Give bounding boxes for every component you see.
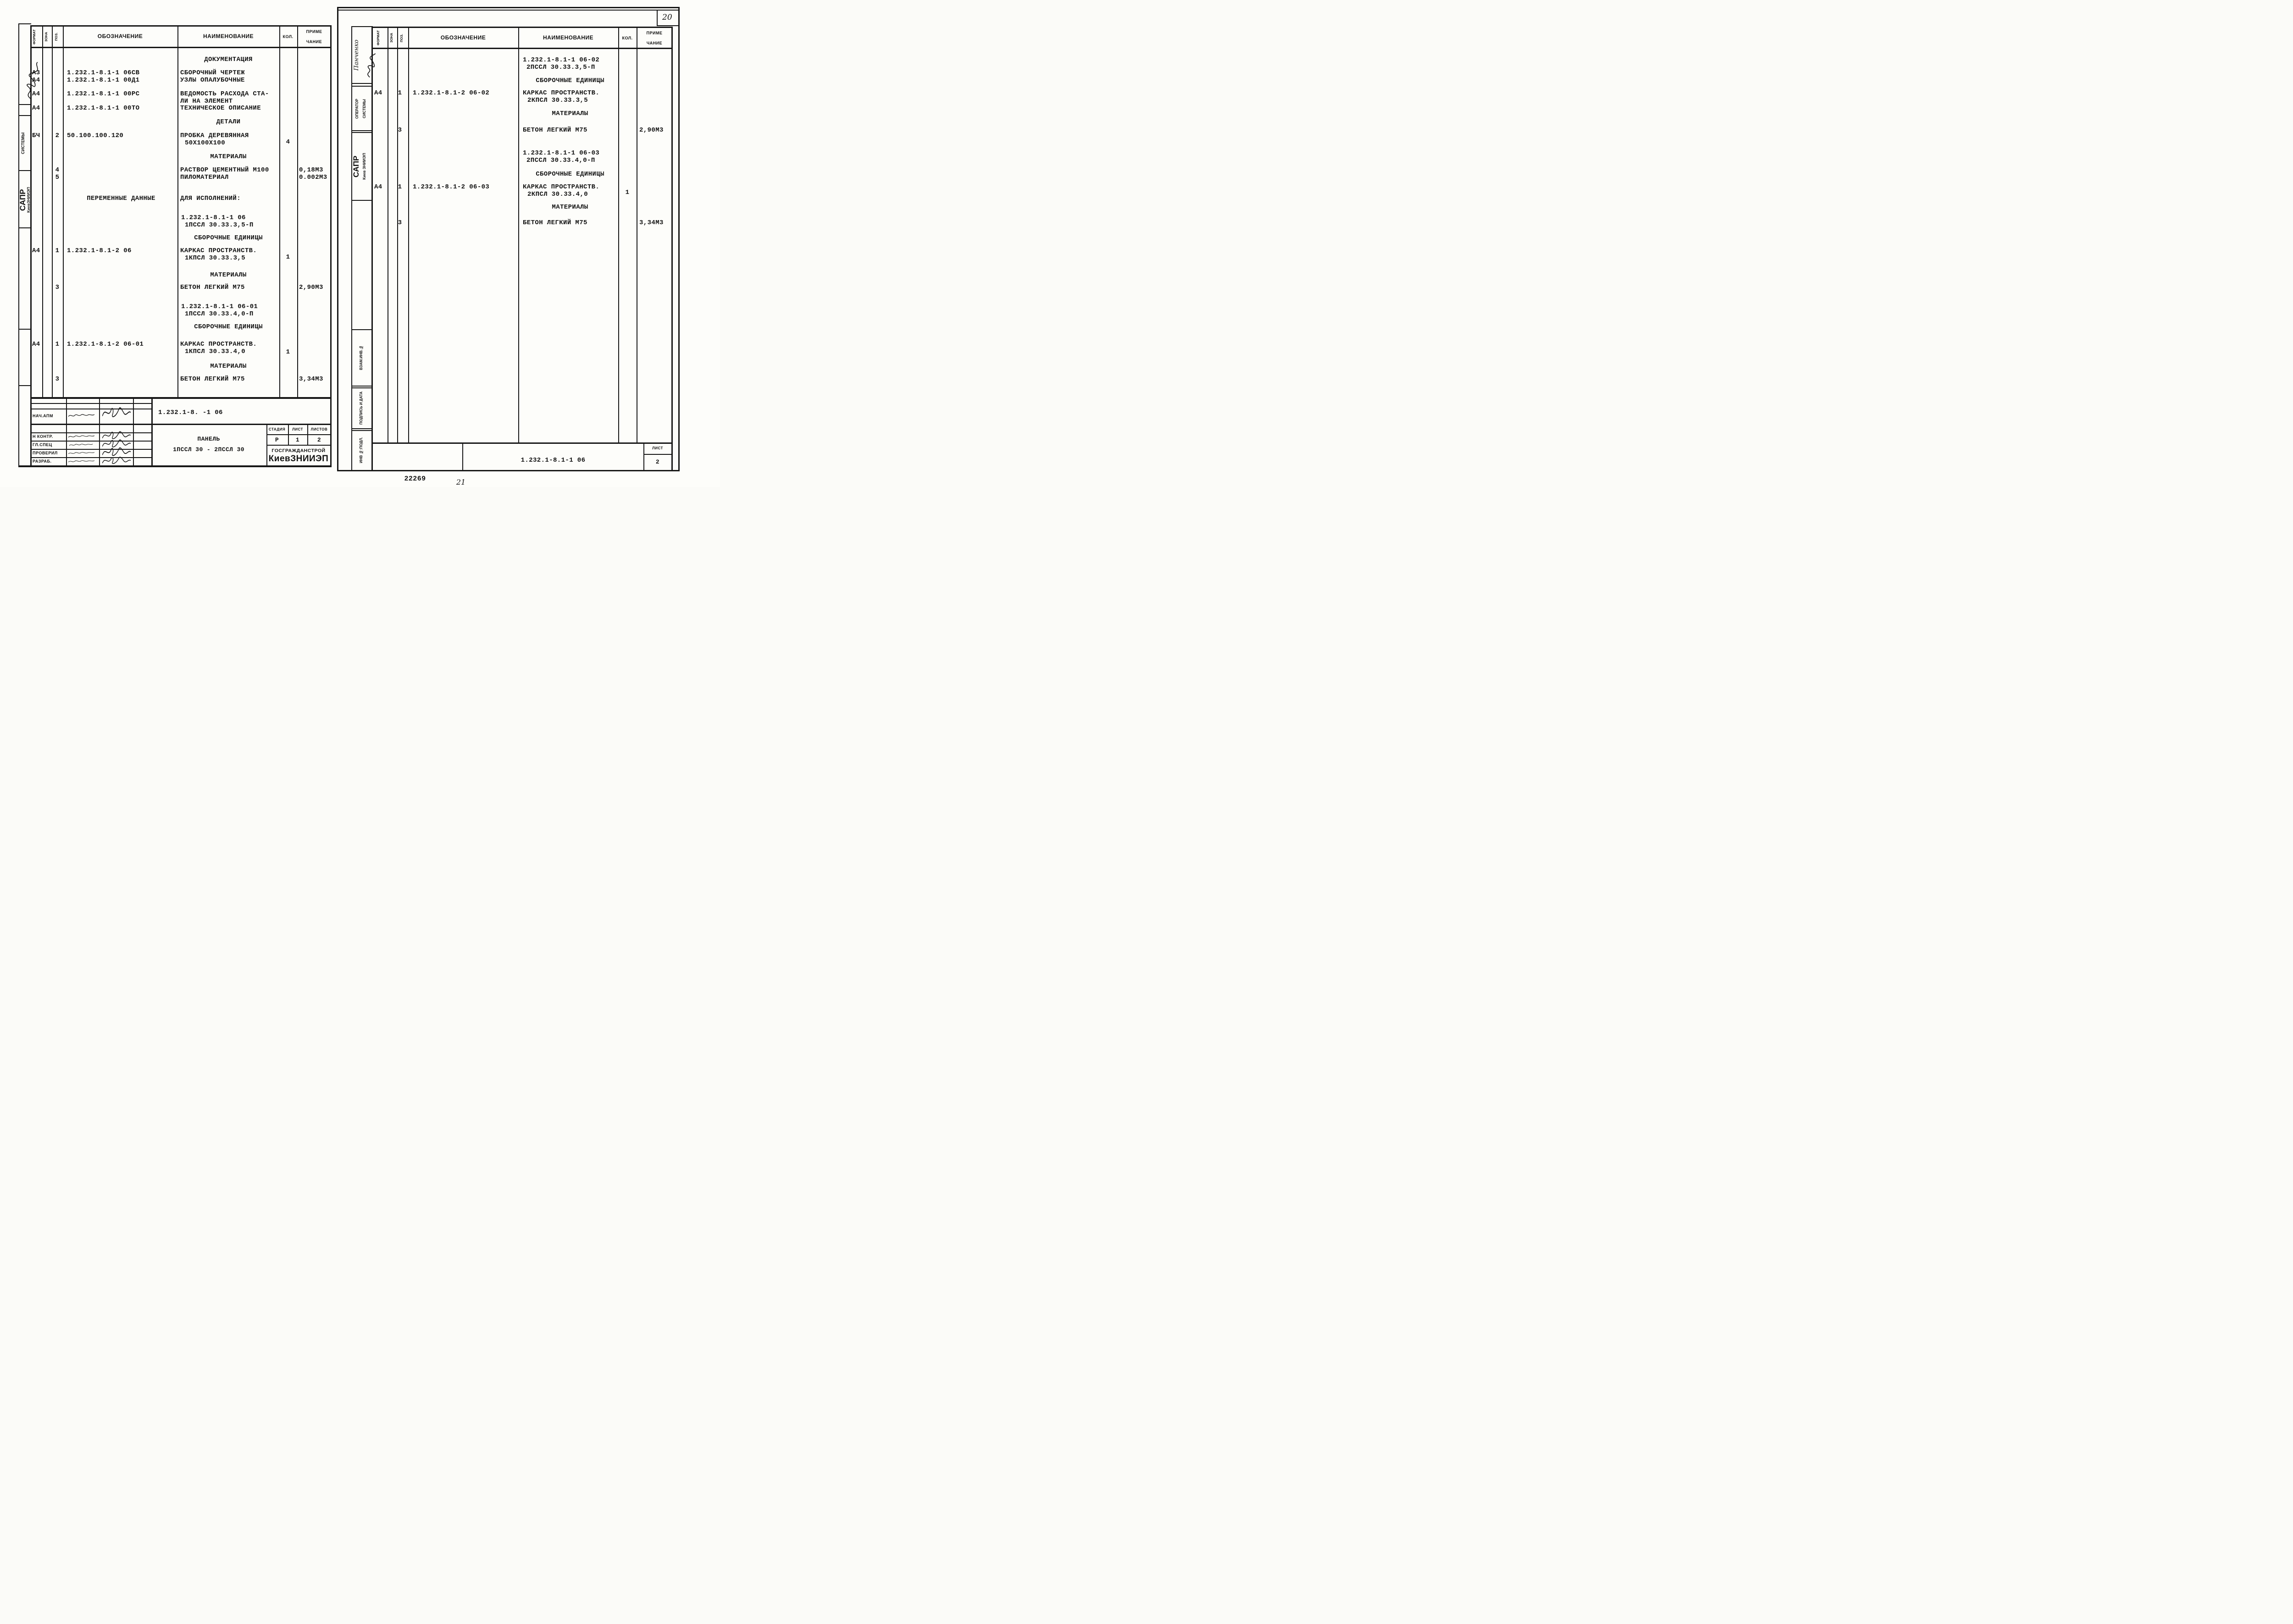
- row-designation: 1.232.1-8.1-2 06-03: [413, 183, 489, 191]
- row-name-2: 2ПССЛ 30.33.4,0-П: [526, 157, 595, 164]
- row-designation: 1.232.1-8.1-1 06СВ: [67, 69, 139, 77]
- row-note: 0.002М3: [299, 174, 327, 181]
- handwritten-signature: [102, 405, 131, 419]
- grid-line: [371, 442, 672, 444]
- row-name: ДЛЯ ИСПОЛНЕНИЙ:: [180, 195, 241, 202]
- grid-line: [297, 25, 298, 398]
- org-name-line1: ГОСГРАЖДАНСТРОЙ: [271, 448, 325, 453]
- row-pos: 4: [55, 166, 60, 174]
- product-name-line2: 1ПССЛ 30 - 2ПССЛ 30: [173, 446, 244, 453]
- grid-line: [133, 398, 134, 466]
- grid-line: [351, 428, 371, 429]
- section-row: СБОРОЧНЫЕ ЕДИНИЦЫ: [194, 234, 263, 242]
- grid-line: [18, 385, 31, 386]
- grid-line: [397, 27, 398, 442]
- right-sidebar-sapr-label: САПР: [352, 135, 361, 198]
- grid-line: [351, 83, 371, 84]
- row-name-2: 1КПСЛ 30.33.4,0: [185, 348, 245, 355]
- col-header-format: ФОРМАТ: [376, 28, 380, 48]
- stage-header: СТАДИЯ: [269, 427, 285, 431]
- row-pos: 3: [398, 219, 402, 226]
- row-pos: 3: [55, 284, 60, 291]
- grid-line: [279, 25, 280, 398]
- grid-line: [657, 25, 679, 26]
- right-sidebar-author-name: Панченко: [353, 29, 360, 81]
- grid-line: [351, 386, 371, 387]
- right-sidebar-operator-label-2: СИСТЕМЫ: [362, 88, 366, 129]
- row-pos: 1: [55, 341, 60, 348]
- row-designation: 1.232.1-8.1-2 06-02: [413, 89, 489, 97]
- row-designation: 1.232.1-8.1-1 00Д1: [67, 77, 139, 84]
- grid-line: [18, 465, 332, 467]
- col-header-zone: ЗОНА: [389, 28, 393, 48]
- col-header-pos: ПОЗ.: [54, 27, 58, 47]
- grid-line: [337, 10, 680, 11]
- grid-line: [288, 425, 289, 446]
- row-format: А4: [374, 183, 382, 191]
- grid-line: [63, 25, 64, 398]
- right-sidebar-inv-label: ИНВ №:ПОДЛ.: [359, 431, 363, 469]
- variable-data-label: ПЕРЕМЕННЫЕ ДАННЫЕ: [87, 195, 155, 202]
- grid-line: [408, 27, 409, 442]
- col-header-designation: ОБОЗНАЧЕНИЕ: [98, 33, 143, 39]
- row-format: А4: [32, 247, 40, 254]
- grid-line: [351, 430, 371, 431]
- handwritten-signature: [68, 459, 96, 465]
- title-doc-number: 1.232.1-8.1-1 06: [521, 457, 586, 464]
- grid-line: [388, 27, 388, 442]
- row-format: А4: [32, 77, 40, 84]
- row-designation: 50.100.100.120: [67, 132, 123, 139]
- org-name-line2: КиевЗНИИЭП: [269, 454, 329, 464]
- row-format: А4: [32, 90, 40, 98]
- col-header-note-2: ЧАНИЕ: [647, 41, 662, 45]
- row-format: А3: [32, 69, 40, 77]
- section-row: МАТЕРИАЛЫ: [210, 271, 246, 279]
- handwritten-signature: [68, 434, 96, 441]
- grid-line: [371, 26, 373, 470]
- row-designation: 1.232.1-8.1-2 06: [67, 247, 132, 254]
- row-name: КАРКАС ПРОСТРАНСТВ.: [523, 183, 599, 191]
- grid-line: [678, 7, 680, 471]
- row-qty: 4: [286, 138, 290, 146]
- col-header-note-1: ПРИМЕ: [647, 31, 663, 35]
- row-name: КАРКАС ПРОСТРАНСТВ.: [180, 341, 257, 348]
- right-sidebar-org-label: Киев ЗНИИЭП: [362, 135, 366, 198]
- grid-line: [462, 442, 463, 470]
- row-format: А4: [32, 105, 40, 112]
- row-name: УЗЛЫ ОПАЛУБОЧНЫЕ: [180, 77, 245, 84]
- row-pos: 3: [55, 376, 60, 383]
- title-label-nach-apm: НАЧ.АПМ: [33, 414, 53, 418]
- row-note: 3,34М3: [639, 219, 664, 226]
- right-sidebar-operator-label-1: ОПЕРАТОР: [355, 88, 359, 129]
- row-name-2: 2ПССЛ 30.33.3,5-П: [526, 64, 595, 71]
- grid-line: [30, 424, 332, 425]
- row-name: СБОРОЧНЫЙ ЧЕРТЕЖ: [180, 69, 245, 77]
- row-qty: 1: [286, 348, 290, 356]
- sheet-header: ЛИСТ: [292, 427, 303, 431]
- grid-line: [18, 329, 31, 330]
- grid-line: [351, 329, 371, 330]
- sheet-header: ЛИСТ: [652, 446, 663, 450]
- row-note: 0,18М3: [299, 166, 323, 174]
- row-name-2: 50X100X100: [185, 139, 225, 147]
- grid-line: [18, 227, 31, 228]
- row-note: 2,90М3: [299, 284, 323, 291]
- row-name: 1.232.1-8.1-1 06-02: [523, 56, 599, 64]
- col-header-designation: ОБОЗНАЧЕНИЕ: [441, 34, 486, 41]
- col-header-pos: ПОЗ.: [399, 28, 404, 48]
- grid-line: [266, 434, 331, 435]
- grid-line: [657, 10, 658, 26]
- col-header-name: НАИМЕНОВАНИЕ: [543, 34, 593, 41]
- grid-line: [637, 27, 637, 442]
- title-label-n-kontr: Н КОНТР.: [33, 434, 53, 439]
- sheet-value: 2: [656, 458, 659, 465]
- row-name-2: 2КПСЛ 30.33.4,0: [527, 191, 588, 198]
- grid-line: [18, 23, 19, 466]
- title-doc-number: 1.232.1-8. -1 06: [158, 409, 223, 416]
- sheets-header: ЛИСТОВ: [311, 427, 328, 431]
- row-qty: 1: [626, 189, 630, 196]
- bottom-page-number: 21: [456, 478, 465, 486]
- col-header-note-1: ПРИМЕ: [306, 29, 322, 34]
- col-header-format: ФОРМАТ: [32, 27, 36, 47]
- row-name-2: 1ПССЛ 30.33.4,0-П: [185, 310, 254, 318]
- section-row: ДОКУМЕНТАЦИЯ: [204, 56, 253, 63]
- grid-line: [177, 25, 178, 398]
- grid-line: [351, 26, 352, 470]
- row-name: КАРКАС ПРОСТРАНСТВ.: [523, 89, 599, 97]
- row-name-2: 1ПССЛ 30.33.3,5-П: [185, 221, 254, 229]
- grid-line: [351, 200, 371, 201]
- grid-line: [18, 23, 31, 24]
- grid-line: [30, 47, 332, 48]
- scanned-specification-document: СИСТЕМЫ САПР КиевЗНИИЭП ФОРМАТ ЗОНА ПОЗ.…: [0, 0, 720, 487]
- right-sidebar-vzam-label: ВЗАМ.ИНВ.№: [359, 331, 363, 384]
- row-name: ВЕДОМОСТЬ РАСХОДА СТА-: [180, 90, 269, 98]
- section-row: МАТЕРИАЛЫ: [210, 153, 246, 160]
- handwritten-signature: [69, 442, 94, 448]
- grid-line: [671, 27, 673, 470]
- title-label-razrab: РАЗРАБ.: [33, 459, 52, 464]
- right-sidebar-podpis-label: ПОДПИСЬ И ДАТА: [359, 389, 363, 427]
- section-row: МАТЕРИАЛЫ: [552, 110, 588, 117]
- col-header-qty: КОЛ.: [282, 34, 293, 39]
- section-row: СБОРОЧНЫЕ ЕДИНИЦЫ: [536, 77, 604, 84]
- section-row: МАТЕРИАЛЫ: [552, 204, 588, 211]
- row-name-2: 1КПСЛ 30.33.3,5: [185, 254, 245, 262]
- handwritten-signature: [68, 451, 96, 457]
- grid-line: [618, 27, 619, 442]
- grid-line: [643, 454, 671, 455]
- row-name: 1.232.1-8.1-1 06: [181, 214, 246, 221]
- section-row: СБОРОЧНЫЕ ЕДИНИЦЫ: [194, 323, 263, 331]
- sheet-value: 1: [296, 436, 299, 443]
- handwritten-signature: [102, 455, 131, 465]
- grid-line: [351, 130, 371, 131]
- row-note: 2,90М3: [639, 127, 664, 134]
- row-format: А4: [374, 89, 382, 97]
- grid-line: [351, 387, 371, 388]
- grid-line: [99, 398, 100, 466]
- row-name: РАСТВОР ЦЕМЕНТНЫЙ М100: [180, 166, 269, 174]
- grid-line: [337, 7, 338, 471]
- grid-line: [351, 26, 371, 27]
- grid-line: [52, 25, 53, 398]
- title-label-proveril: ПРОВЕРИЛ: [33, 451, 58, 455]
- row-designation: 1.232.1-8.1-2 06-01: [67, 341, 144, 348]
- grid-line: [30, 25, 332, 27]
- grid-line: [18, 104, 31, 105]
- grid-line: [371, 48, 672, 49]
- row-name: 1.232.1-8.1-1 06-03: [523, 149, 599, 157]
- grid-line: [337, 470, 680, 471]
- row-pos: 1: [398, 183, 402, 191]
- grid-line: [266, 445, 331, 446]
- section-row: СБОРОЧНЫЕ ЕДИНИЦЫ: [536, 171, 604, 178]
- row-pos: 1: [55, 247, 60, 254]
- grid-line: [42, 25, 43, 398]
- sheets-value: 2: [317, 436, 321, 443]
- row-name: ТЕХНИЧЕСКОЕ ОПИСАНИЕ: [180, 105, 261, 112]
- row-format: А4: [32, 341, 40, 348]
- left-sidebar-systems-label: СИСТЕМЫ: [21, 117, 25, 169]
- product-name-line1: ПАНЕЛЬ: [197, 436, 220, 442]
- row-name: ПИЛОМАТЕРИАЛ: [180, 174, 229, 181]
- col-header-name: НАИМЕНОВАНИЕ: [203, 33, 254, 39]
- grid-line: [337, 7, 680, 8]
- row-pos: 1: [398, 89, 402, 97]
- grid-line: [307, 425, 308, 446]
- row-pos: 3: [398, 127, 402, 134]
- grid-line: [643, 442, 644, 470]
- col-header-qty: КОЛ.: [622, 36, 632, 40]
- handwritten-signature: [68, 412, 96, 420]
- row-name: КАРКАС ПРОСТРАНСТВ.: [180, 247, 257, 254]
- row-pos: 2: [55, 132, 60, 139]
- row-name: 1.232.1-8.1-1 06-01: [181, 303, 258, 310]
- grid-line: [18, 115, 31, 116]
- grid-line: [18, 170, 31, 171]
- row-name: БЕТОН ЛЕГКИЙ М75: [523, 127, 587, 134]
- row-name: ПРОБКА ДЕРЕВЯННАЯ: [180, 132, 249, 139]
- grid-line: [518, 27, 519, 442]
- section-row: МАТЕРИАЛЫ: [210, 363, 246, 370]
- col-header-zone: ЗОНА: [44, 27, 48, 47]
- grid-line: [371, 27, 672, 28]
- row-format: БЧ: [32, 132, 40, 139]
- row-designation: 1.232.1-8.1-1 00ТО: [67, 105, 139, 112]
- row-pos: 5: [55, 174, 60, 181]
- title-label-gl-spec: ГЛ.СПЕЦ: [33, 442, 52, 447]
- grid-line: [351, 132, 371, 133]
- grid-line: [151, 398, 153, 466]
- row-name: БЕТОН ЛЕГКИЙ М75: [180, 284, 245, 291]
- row-qty: 1: [286, 254, 290, 261]
- col-header-note-2: ЧАНИЕ: [306, 39, 322, 44]
- grid-line: [351, 86, 371, 87]
- row-name: БЕТОН ЛЕГКИЙ М75: [180, 376, 245, 383]
- grid-line: [66, 398, 67, 466]
- stage-value: Р: [275, 436, 279, 443]
- row-name-2: ЛИ НА ЭЛЕМЕНТ: [180, 98, 233, 105]
- row-note: 3,34М3: [299, 376, 323, 383]
- row-designation: 1.232.1-8.1-1 00РС: [67, 90, 139, 98]
- grid-line: [330, 25, 332, 466]
- row-name-2: 2КПСЛ 30.33.3,5: [527, 97, 588, 104]
- grid-line: [30, 25, 32, 466]
- corner-page-number: 20: [662, 13, 672, 22]
- grid-line: [30, 397, 332, 399]
- section-row: ДЕТАЛИ: [216, 118, 241, 126]
- row-name: БЕТОН ЛЕГКИЙ М75: [523, 219, 587, 226]
- stamp-number: 22269: [404, 475, 426, 483]
